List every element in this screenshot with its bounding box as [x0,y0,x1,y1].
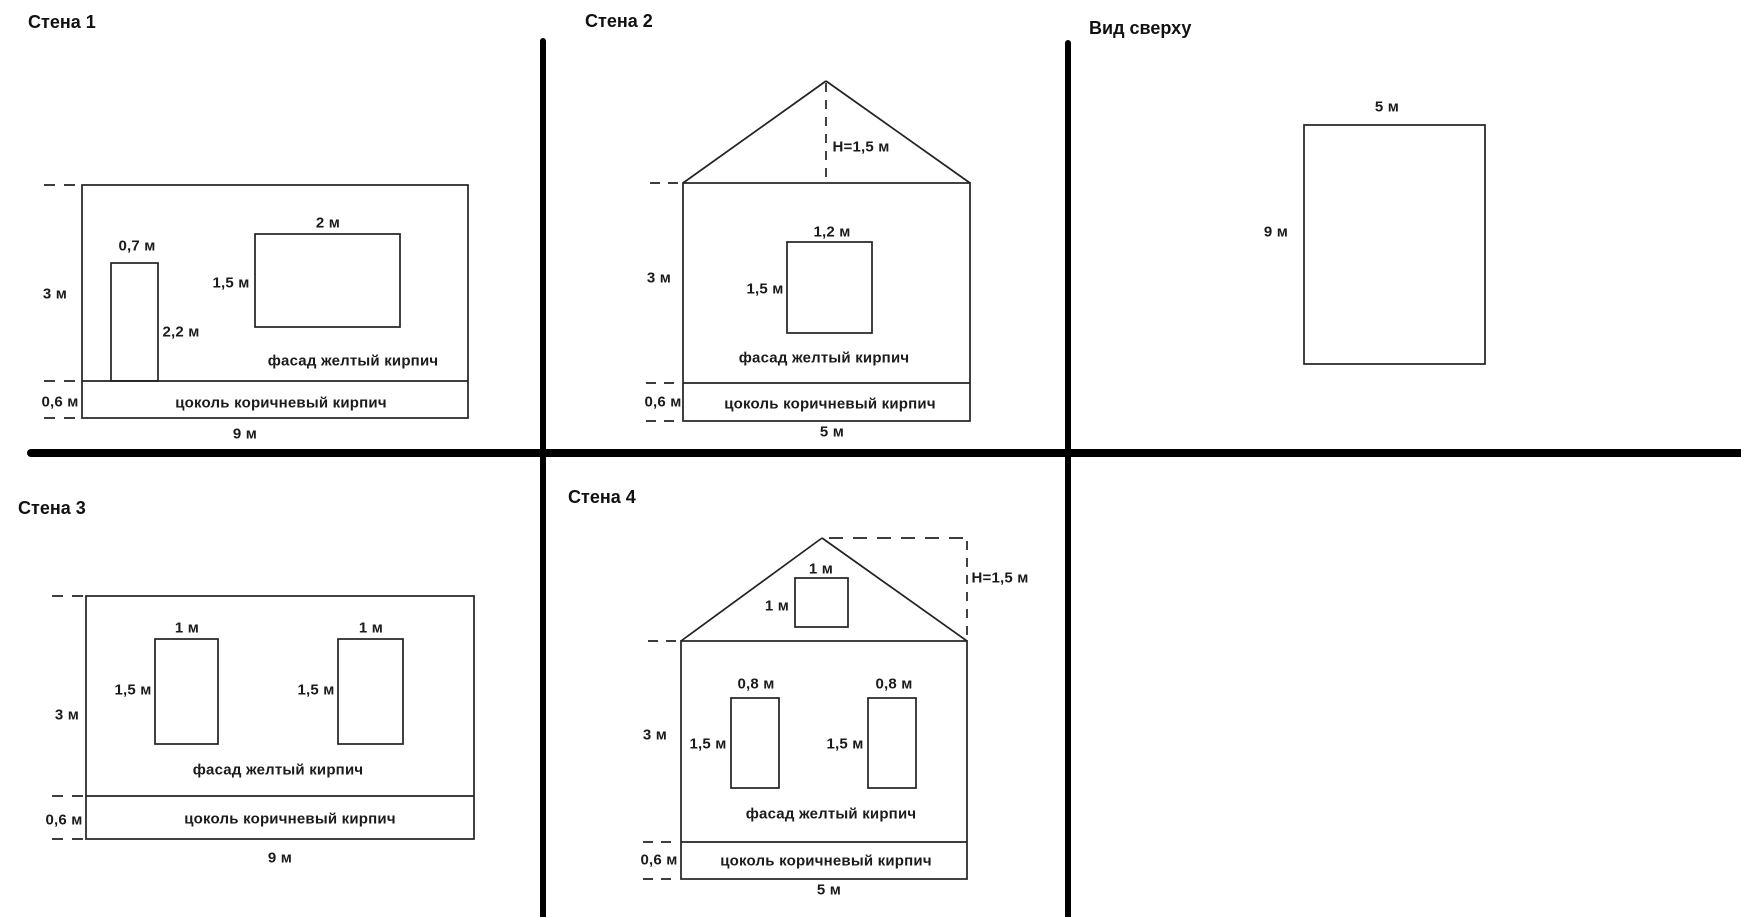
wall4-attic-window [795,578,848,627]
wall4-roof-left-slope [681,538,822,641]
wall1-wall-height-label: 3 м [43,286,67,303]
wall2-window-width-label: 1,2 м [813,224,850,241]
wall2-title: Стена 2 [585,11,653,32]
wall4-wall-height-label: 3 м [643,727,667,744]
wall1-door [111,263,158,381]
wall1-facade-label: фасад желтый кирпич [268,353,439,370]
wall4-window-left [731,698,779,788]
wall4-plinth-height-label: 0,6 м [640,852,677,869]
wall4-roof-right-slope [822,538,967,641]
wall2-roof-right-slope [826,81,970,183]
wall1-wall-width-label: 9 м [233,426,257,443]
top-view-width-label: 5 м [1375,99,1399,116]
wall1-window-width-label: 2 м [316,215,340,232]
wall3-window1-width-label: 1 м [175,620,199,637]
wall3-window2-height-label: 1,5 м [297,682,334,699]
wall1-plinth-label: цоколь коричневый кирпич [175,395,386,412]
wall1-drawing [44,185,468,418]
wall1-door-height-label: 2,2 м [162,324,199,341]
wall2-facade-label: фасад желтый кирпич [739,350,910,367]
top-view-drawing [1304,125,1485,364]
wall4-plinth-label: цоколь коричневый кирпич [720,853,931,870]
wall4-window2-height-label: 1,5 м [826,736,863,753]
wall4-title: Стена 4 [568,487,636,508]
wall1-door-width-label: 0,7 м [118,238,155,255]
wall3-facade-label: фасад желтый кирпич [193,762,364,779]
wall4-window-right [868,698,916,788]
wall1-plinth-height-label: 0,6 м [41,394,78,411]
wall3-wall-height-label: 3 м [55,707,79,724]
wall4-window1-height-label: 1,5 м [689,736,726,753]
wall4-facade-label: фасад желтый кирпич [746,806,917,823]
wall4-roof-height-label: H=1,5 м [971,570,1028,587]
wall2-roof-height-label: H=1,5 м [832,139,889,156]
wall1-window-height-label: 1,5 м [212,275,249,292]
wall2-window [787,242,872,333]
wall3-window2-width-label: 1 м [359,620,383,637]
wall4-attic-window-width-label: 1 м [809,561,833,578]
blueprint-canvas: Стена 1 Стена 2 Вид сверху Стена 3 Стена… [0,0,1741,917]
wall2-wall-width-label: 5 м [820,424,844,441]
top-view-title: Вид сверху [1089,18,1191,39]
wall2-outline [683,183,970,421]
wall2-roof-left-slope [683,81,826,183]
wall2-wall-height-label: 3 м [647,270,671,287]
wall3-drawing [52,596,474,839]
wall1-window [255,234,400,327]
wall3-window-right [338,639,403,744]
wall2-window-height-label: 1,5 м [746,281,783,298]
wall4-window2-width-label: 0,8 м [875,676,912,693]
wall2-plinth-height-label: 0,6 м [644,394,681,411]
wall3-plinth-label: цоколь коричневый кирпич [184,811,395,828]
wall1-outline [82,185,468,418]
wall3-plinth-height-label: 0,6 м [45,812,82,829]
wall3-window-left [155,639,218,744]
wall3-window1-height-label: 1,5 м [114,682,151,699]
wall1-title: Стена 1 [28,12,96,33]
wall3-title: Стена 3 [18,498,86,519]
top-view-outline [1304,125,1485,364]
wall4-drawing [643,538,967,879]
wall3-wall-width-label: 9 м [268,850,292,867]
wall2-plinth-label: цоколь коричневый кирпич [724,396,935,413]
wall3-outline [86,596,474,839]
wall4-attic-window-height-label: 1 м [765,598,789,615]
wall4-window1-width-label: 0,8 м [737,676,774,693]
wall2-drawing [646,81,970,421]
wall4-outline [681,641,967,879]
top-view-depth-label: 9 м [1264,224,1288,241]
wall4-wall-width-label: 5 м [817,882,841,899]
